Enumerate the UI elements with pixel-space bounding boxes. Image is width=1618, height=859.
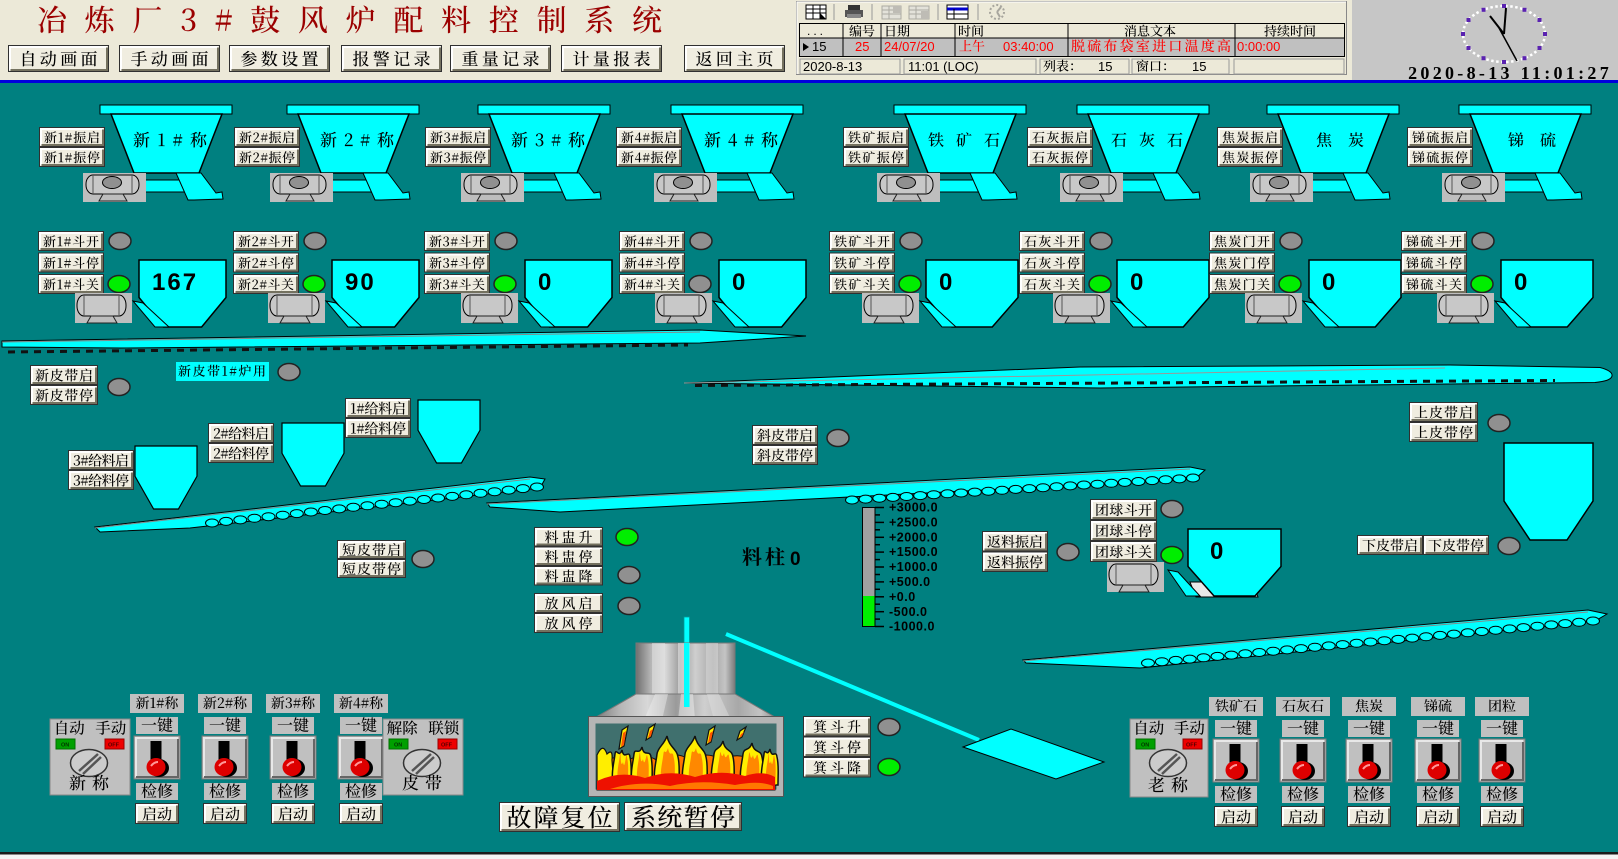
svg-text:-500.0: -500.0 — [889, 605, 927, 619]
svg-text:OFF: OFF — [108, 743, 120, 749]
svg-text:0: 0 — [1130, 269, 1145, 296]
svg-text:+500.0: +500.0 — [889, 575, 931, 589]
svg-text:OFF: OFF — [441, 743, 453, 749]
svg-text:+2000.0: +2000.0 — [889, 530, 938, 544]
svg-text:2020-8-13: 2020-8-13 — [803, 59, 862, 74]
svg-text:11:01 (LOC): 11:01 (LOC) — [908, 59, 979, 74]
svg-text:0: 0 — [939, 269, 954, 296]
svg-text:-1000.0: -1000.0 — [889, 620, 935, 634]
svg-text:+0.0: +0.0 — [889, 590, 916, 604]
svg-text:15: 15 — [1192, 59, 1206, 74]
svg-text:2020-8-13 11:01:27: 2020-8-13 11:01:27 — [1408, 63, 1612, 83]
svg-text:25: 25 — [855, 39, 869, 54]
svg-text:...: ... — [807, 24, 826, 38]
svg-text:15: 15 — [1098, 59, 1112, 74]
svg-text:0:00:00: 0:00:00 — [1237, 39, 1280, 54]
svg-text:24/07/20: 24/07/20 — [884, 39, 935, 54]
svg-text:ON: ON — [1141, 743, 1149, 749]
svg-text:167: 167 — [152, 269, 198, 296]
svg-text:+3000.0: +3000.0 — [889, 501, 938, 515]
svg-text:ON: ON — [61, 743, 69, 749]
svg-text:0: 0 — [1514, 269, 1529, 296]
svg-text:0: 0 — [538, 269, 553, 296]
svg-text:+1500.0: +1500.0 — [889, 545, 938, 559]
svg-text:0: 0 — [1322, 269, 1337, 296]
svg-text:90: 90 — [345, 269, 376, 296]
svg-text:ON: ON — [394, 743, 402, 749]
svg-text:+1000.0: +1000.0 — [889, 560, 938, 574]
svg-text:+2500.0: +2500.0 — [889, 515, 938, 529]
svg-text:OFF: OFF — [1186, 743, 1198, 749]
svg-text:15: 15 — [812, 39, 826, 54]
svg-text:0: 0 — [732, 269, 747, 296]
svg-text:0: 0 — [1210, 538, 1225, 565]
svg-text:0: 0 — [790, 549, 801, 570]
svg-text:03:40:00: 03:40:00 — [1003, 39, 1054, 54]
